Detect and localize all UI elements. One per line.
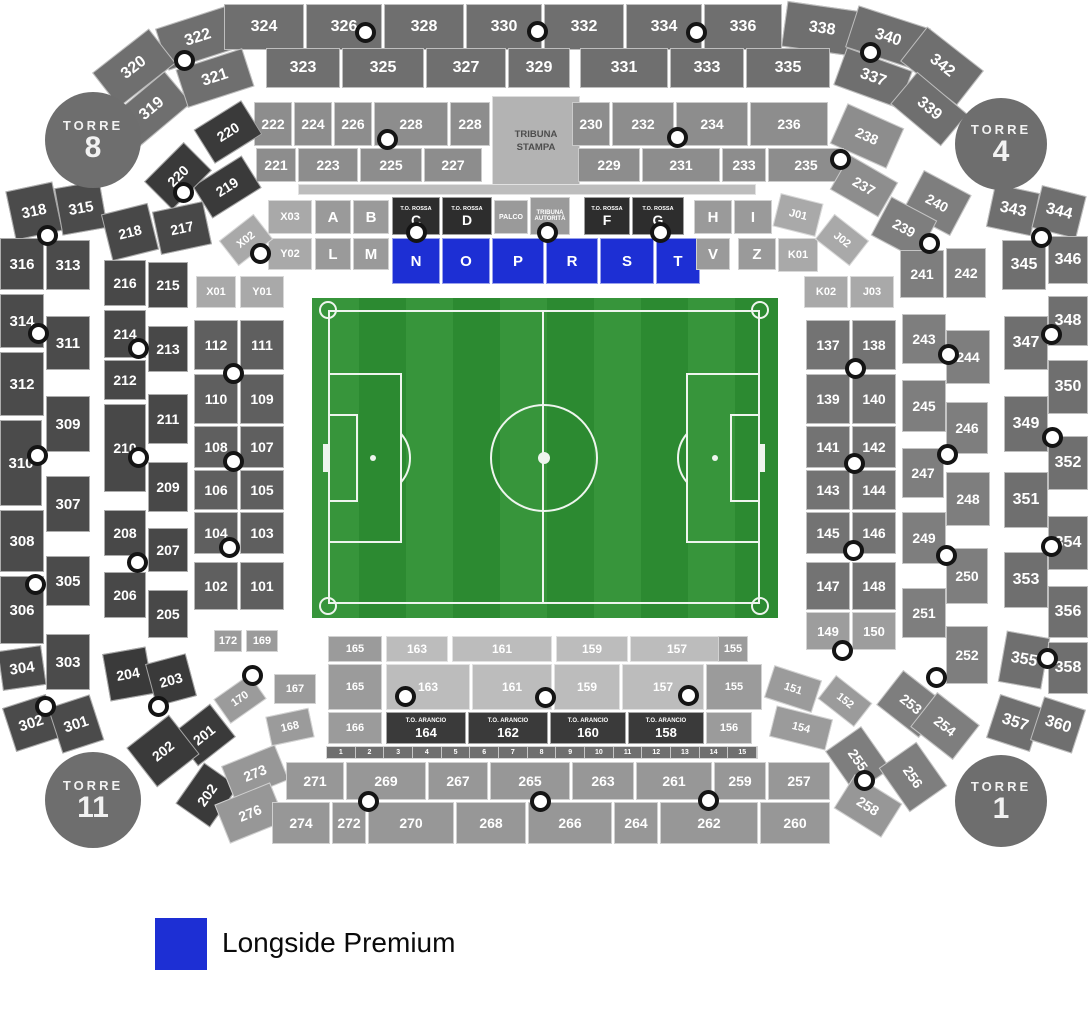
- section-palco[interactable]: PALCO: [494, 200, 528, 234]
- section-270[interactable]: 270: [368, 802, 454, 844]
- pitch-left-goal: [323, 444, 328, 472]
- gate-marker: [37, 225, 58, 246]
- gate-marker: [223, 451, 244, 472]
- gate-marker: [698, 790, 719, 811]
- section-303[interactable]: 303: [46, 634, 90, 690]
- tower-number: 11: [77, 793, 109, 823]
- section-271[interactable]: 271: [286, 762, 344, 800]
- section-231[interactable]: 231: [642, 148, 720, 182]
- section-208[interactable]: 208: [104, 510, 146, 556]
- section-x01[interactable]: X01: [196, 276, 236, 308]
- gate-marker: [128, 447, 149, 468]
- section-312[interactable]: 312: [0, 352, 44, 416]
- section-212[interactable]: 212: [104, 360, 146, 400]
- row-number-1: 1: [327, 747, 356, 758]
- gate-marker: [535, 687, 556, 708]
- stadium-seat-map: 3223243263283303323343363383403423203193…: [0, 0, 1089, 1032]
- section-224[interactable]: 224: [294, 102, 332, 146]
- section-301[interactable]: 301: [48, 694, 105, 753]
- section-242[interactable]: 242: [946, 248, 986, 298]
- section-313[interactable]: 313: [46, 240, 90, 290]
- gate-marker: [127, 552, 148, 573]
- section-z[interactable]: Z: [738, 238, 776, 270]
- section-s[interactable]: S: [600, 238, 654, 284]
- section-v[interactable]: V: [696, 238, 730, 270]
- section-162[interactable]: T.O. ARANCIO162: [468, 712, 548, 744]
- section-103[interactable]: 103: [240, 512, 284, 554]
- section-169[interactable]: 169: [246, 630, 278, 652]
- section-r[interactable]: R: [546, 238, 598, 284]
- gate-marker: [854, 770, 875, 791]
- section-t[interactable]: T: [656, 238, 700, 284]
- section-137[interactable]: 137: [806, 320, 850, 370]
- gate-marker: [843, 540, 864, 561]
- section-351[interactable]: 351: [1004, 472, 1048, 528]
- row-number-10: 10: [585, 747, 614, 758]
- section-323[interactable]: 323: [266, 48, 340, 88]
- section-n[interactable]: N: [392, 238, 440, 284]
- section-165[interactable]: 165: [328, 664, 382, 710]
- section-168[interactable]: 168: [265, 708, 314, 746]
- section-p[interactable]: P: [492, 238, 544, 284]
- gate-marker: [242, 665, 263, 686]
- section-225[interactable]: 225: [360, 148, 422, 182]
- gate-marker: [650, 222, 671, 243]
- gate-marker: [845, 358, 866, 379]
- section-160[interactable]: T.O. ARANCIO160: [550, 712, 626, 744]
- section-329[interactable]: 329: [508, 48, 570, 88]
- gate-marker: [1031, 227, 1052, 248]
- row-number-5: 5: [442, 747, 471, 758]
- section-139[interactable]: 139: [806, 374, 850, 424]
- legend-label: Longside Premium: [222, 927, 455, 959]
- tower-number: 8: [85, 133, 102, 163]
- section-307[interactable]: 307: [46, 476, 90, 532]
- row-number-8: 8: [528, 747, 557, 758]
- section-347[interactable]: 347: [1004, 316, 1048, 370]
- legend-color-swatch: [155, 918, 207, 970]
- section-230[interactable]: 230: [572, 102, 610, 146]
- gate-marker: [667, 127, 688, 148]
- gate-marker: [1037, 648, 1058, 669]
- section-i[interactable]: I: [734, 200, 772, 234]
- section-b[interactable]: B: [353, 200, 389, 234]
- pitch-right-penalty-spot: [712, 455, 718, 461]
- section-206[interactable]: 206: [104, 572, 146, 618]
- row-number-strip: 123456789101112131415: [326, 746, 758, 759]
- section-107[interactable]: 107: [240, 426, 284, 468]
- section-218[interactable]: 218: [101, 203, 159, 261]
- section-349[interactable]: 349: [1004, 396, 1048, 452]
- gate-marker: [174, 50, 195, 71]
- section-248[interactable]: 248: [946, 472, 990, 526]
- pitch-corner-arc: [319, 301, 337, 319]
- section-106[interactable]: 106: [194, 470, 238, 510]
- gate-marker: [1042, 427, 1063, 448]
- pitch-corner-arc: [319, 597, 337, 615]
- row-number-6: 6: [470, 747, 499, 758]
- section-164[interactable]: T.O. ARANCIO164: [386, 712, 466, 744]
- row-number-14: 14: [700, 747, 729, 758]
- gate-marker: [830, 149, 851, 170]
- section-156[interactable]: 156: [706, 712, 752, 744]
- section-259[interactable]: 259: [714, 762, 766, 800]
- tower-1: TORRE1: [955, 755, 1047, 847]
- section-315[interactable]: 315: [54, 180, 108, 235]
- section-223[interactable]: 223: [298, 148, 358, 182]
- section-167[interactable]: 167: [274, 674, 316, 704]
- gate-marker: [860, 42, 881, 63]
- section-205[interactable]: 205: [148, 590, 188, 638]
- section-265[interactable]: 265: [490, 762, 570, 800]
- row-number-2: 2: [356, 747, 385, 758]
- tower-8: TORRE8: [45, 92, 141, 188]
- section-209[interactable]: 209: [148, 462, 188, 512]
- section-150[interactable]: 150: [852, 612, 896, 650]
- section-274[interactable]: 274: [272, 802, 330, 844]
- section-346[interactable]: 346: [1048, 236, 1088, 284]
- section-268[interactable]: 268: [456, 802, 526, 844]
- gate-marker: [35, 696, 56, 717]
- section-j03[interactable]: J03: [850, 276, 894, 308]
- gate-marker: [128, 338, 149, 359]
- section-311[interactable]: 311: [46, 316, 90, 370]
- gate-marker: [406, 222, 427, 243]
- section-263[interactable]: 263: [572, 762, 634, 800]
- section-155[interactable]: 155: [718, 636, 748, 662]
- section-216[interactable]: 216: [104, 260, 146, 306]
- gate-marker: [250, 243, 271, 264]
- section-257[interactable]: 257: [768, 762, 830, 800]
- section-269[interactable]: 269: [346, 762, 426, 800]
- section-204[interactable]: 204: [102, 647, 154, 702]
- section-158[interactable]: T.O. ARANCIO158: [628, 712, 704, 744]
- gate-marker: [395, 686, 416, 707]
- tower-11: TORRE11: [45, 752, 141, 848]
- section-221[interactable]: 221: [256, 148, 296, 182]
- section-316[interactable]: 316: [0, 238, 44, 290]
- gate-marker: [358, 791, 379, 812]
- section-154[interactable]: 154: [769, 705, 833, 750]
- gate-marker: [530, 791, 551, 812]
- section-y02[interactable]: Y02: [268, 238, 312, 270]
- gate-marker: [844, 453, 865, 474]
- section-333[interactable]: 333: [670, 48, 744, 88]
- row-number-12: 12: [642, 747, 671, 758]
- section-335[interactable]: 335: [746, 48, 830, 88]
- gate-marker: [926, 667, 947, 688]
- pitch-corner-arc: [751, 597, 769, 615]
- section-165[interactable]: 165: [328, 636, 382, 662]
- section-101[interactable]: 101: [240, 562, 284, 610]
- section-140[interactable]: 140: [852, 374, 896, 424]
- tower-number: 1: [993, 794, 1010, 824]
- section-222[interactable]: 222: [254, 102, 292, 146]
- section-252[interactable]: 252: [946, 626, 988, 684]
- gate-marker: [355, 22, 376, 43]
- section-308[interactable]: 308: [0, 510, 44, 572]
- section-220[interactable]: 220: [194, 100, 263, 164]
- section-f[interactable]: T.O. ROSSAF: [584, 197, 630, 235]
- section-k01[interactable]: K01: [778, 238, 818, 272]
- section-163[interactable]: 163: [386, 636, 448, 662]
- section-144[interactable]: 144: [852, 470, 896, 510]
- section-o[interactable]: O: [442, 238, 490, 284]
- section-336[interactable]: 336: [704, 4, 782, 50]
- section-325[interactable]: 325: [342, 48, 424, 88]
- section-111[interactable]: 111: [240, 320, 284, 370]
- gate-marker: [537, 222, 558, 243]
- section-305[interactable]: 305: [46, 556, 90, 606]
- section-166[interactable]: 166: [328, 712, 382, 744]
- section-143[interactable]: 143: [806, 470, 850, 510]
- row-number-3: 3: [384, 747, 413, 758]
- section-331[interactable]: 331: [580, 48, 668, 88]
- gate-marker: [27, 445, 48, 466]
- section-245[interactable]: 245: [902, 380, 946, 432]
- gate-marker: [223, 363, 244, 384]
- section-345[interactable]: 345: [1002, 240, 1046, 290]
- section-tribuna-stampa[interactable]: TRIBUNA STAMPA: [492, 96, 580, 188]
- pitch-left-penalty-spot: [370, 455, 376, 461]
- gate-marker: [678, 685, 699, 706]
- section-157[interactable]: 157: [630, 636, 724, 662]
- section-159[interactable]: 159: [554, 664, 620, 710]
- section-172[interactable]: 172: [214, 630, 242, 652]
- section-161[interactable]: 161: [452, 636, 552, 662]
- gate-marker: [219, 537, 240, 558]
- section-241[interactable]: 241: [900, 250, 944, 298]
- section-105[interactable]: 105: [240, 470, 284, 510]
- gate-marker: [173, 182, 194, 203]
- pitch-corner-arc: [751, 301, 769, 319]
- section-155[interactable]: 155: [706, 664, 762, 710]
- tower-4: TORRE4: [955, 98, 1047, 190]
- gate-marker: [938, 344, 959, 365]
- section-ring-strip: [298, 184, 756, 195]
- gate-marker: [1041, 536, 1062, 557]
- section-m[interactable]: M: [353, 238, 389, 270]
- section-x03[interactable]: X03: [268, 200, 312, 234]
- pitch-right-goal-area: [730, 414, 760, 502]
- section-207[interactable]: 207: [148, 528, 188, 572]
- section-343[interactable]: 343: [986, 184, 1040, 237]
- pitch-right-goal: [760, 444, 765, 472]
- section-328[interactable]: 328: [384, 4, 464, 50]
- section-y01[interactable]: Y01: [240, 276, 284, 308]
- section-109[interactable]: 109: [240, 374, 284, 424]
- row-number-9: 9: [556, 747, 585, 758]
- row-number-11: 11: [614, 747, 643, 758]
- section-228[interactable]: 228: [450, 102, 490, 146]
- section-324[interactable]: 324: [224, 4, 304, 50]
- gate-marker: [377, 129, 398, 150]
- gate-marker: [25, 574, 46, 595]
- section-350[interactable]: 350: [1048, 360, 1088, 414]
- section-304[interactable]: 304: [0, 645, 47, 691]
- section-d[interactable]: T.O. ROSSAD: [442, 197, 492, 235]
- section-159[interactable]: 159: [556, 636, 628, 662]
- gate-marker: [527, 21, 548, 42]
- section-102[interactable]: 102: [194, 562, 238, 610]
- pitch-left-goal-area: [328, 414, 358, 502]
- section-h[interactable]: H: [694, 200, 732, 234]
- section-260[interactable]: 260: [760, 802, 830, 844]
- section-k02[interactable]: K02: [804, 276, 848, 308]
- gate-marker: [936, 545, 957, 566]
- section-233[interactable]: 233: [722, 148, 766, 182]
- football-pitch: [312, 298, 778, 618]
- section-232[interactable]: 232: [612, 102, 674, 146]
- gate-marker: [832, 640, 853, 661]
- section-147[interactable]: 147: [806, 562, 850, 610]
- tower-number: 4: [993, 137, 1010, 167]
- section-j01[interactable]: J01: [773, 193, 824, 237]
- section-l[interactable]: L: [315, 238, 351, 270]
- gate-marker: [28, 323, 49, 344]
- section-215[interactable]: 215: [148, 262, 188, 308]
- section-211[interactable]: 211: [148, 394, 188, 444]
- gate-marker: [686, 22, 707, 43]
- section-251[interactable]: 251: [902, 588, 946, 638]
- section-332[interactable]: 332: [544, 4, 624, 50]
- section-151[interactable]: 151: [764, 665, 822, 713]
- section-327[interactable]: 327: [426, 48, 506, 88]
- section-226[interactable]: 226: [334, 102, 372, 146]
- row-number-4: 4: [413, 747, 442, 758]
- gate-marker: [937, 444, 958, 465]
- section-217[interactable]: 217: [152, 201, 212, 255]
- section-a[interactable]: A: [315, 200, 351, 234]
- row-number-15: 15: [728, 747, 757, 758]
- row-number-7: 7: [499, 747, 528, 758]
- section-360[interactable]: 360: [1030, 696, 1086, 753]
- section-236[interactable]: 236: [750, 102, 828, 146]
- section-353[interactable]: 353: [1004, 552, 1048, 608]
- section-309[interactable]: 309: [46, 396, 90, 452]
- gate-marker: [919, 233, 940, 254]
- gate-marker: [148, 696, 169, 717]
- section-356[interactable]: 356: [1048, 586, 1088, 638]
- section-j02[interactable]: J02: [815, 214, 869, 266]
- section-267[interactable]: 267: [428, 762, 488, 800]
- row-number-13: 13: [671, 747, 700, 758]
- section-227[interactable]: 227: [424, 148, 482, 182]
- section-148[interactable]: 148: [852, 562, 896, 610]
- section-229[interactable]: 229: [578, 148, 640, 182]
- gate-marker: [1041, 324, 1062, 345]
- pitch-center-spot: [538, 452, 550, 464]
- section-264[interactable]: 264: [614, 802, 658, 844]
- section-213[interactable]: 213: [148, 326, 188, 372]
